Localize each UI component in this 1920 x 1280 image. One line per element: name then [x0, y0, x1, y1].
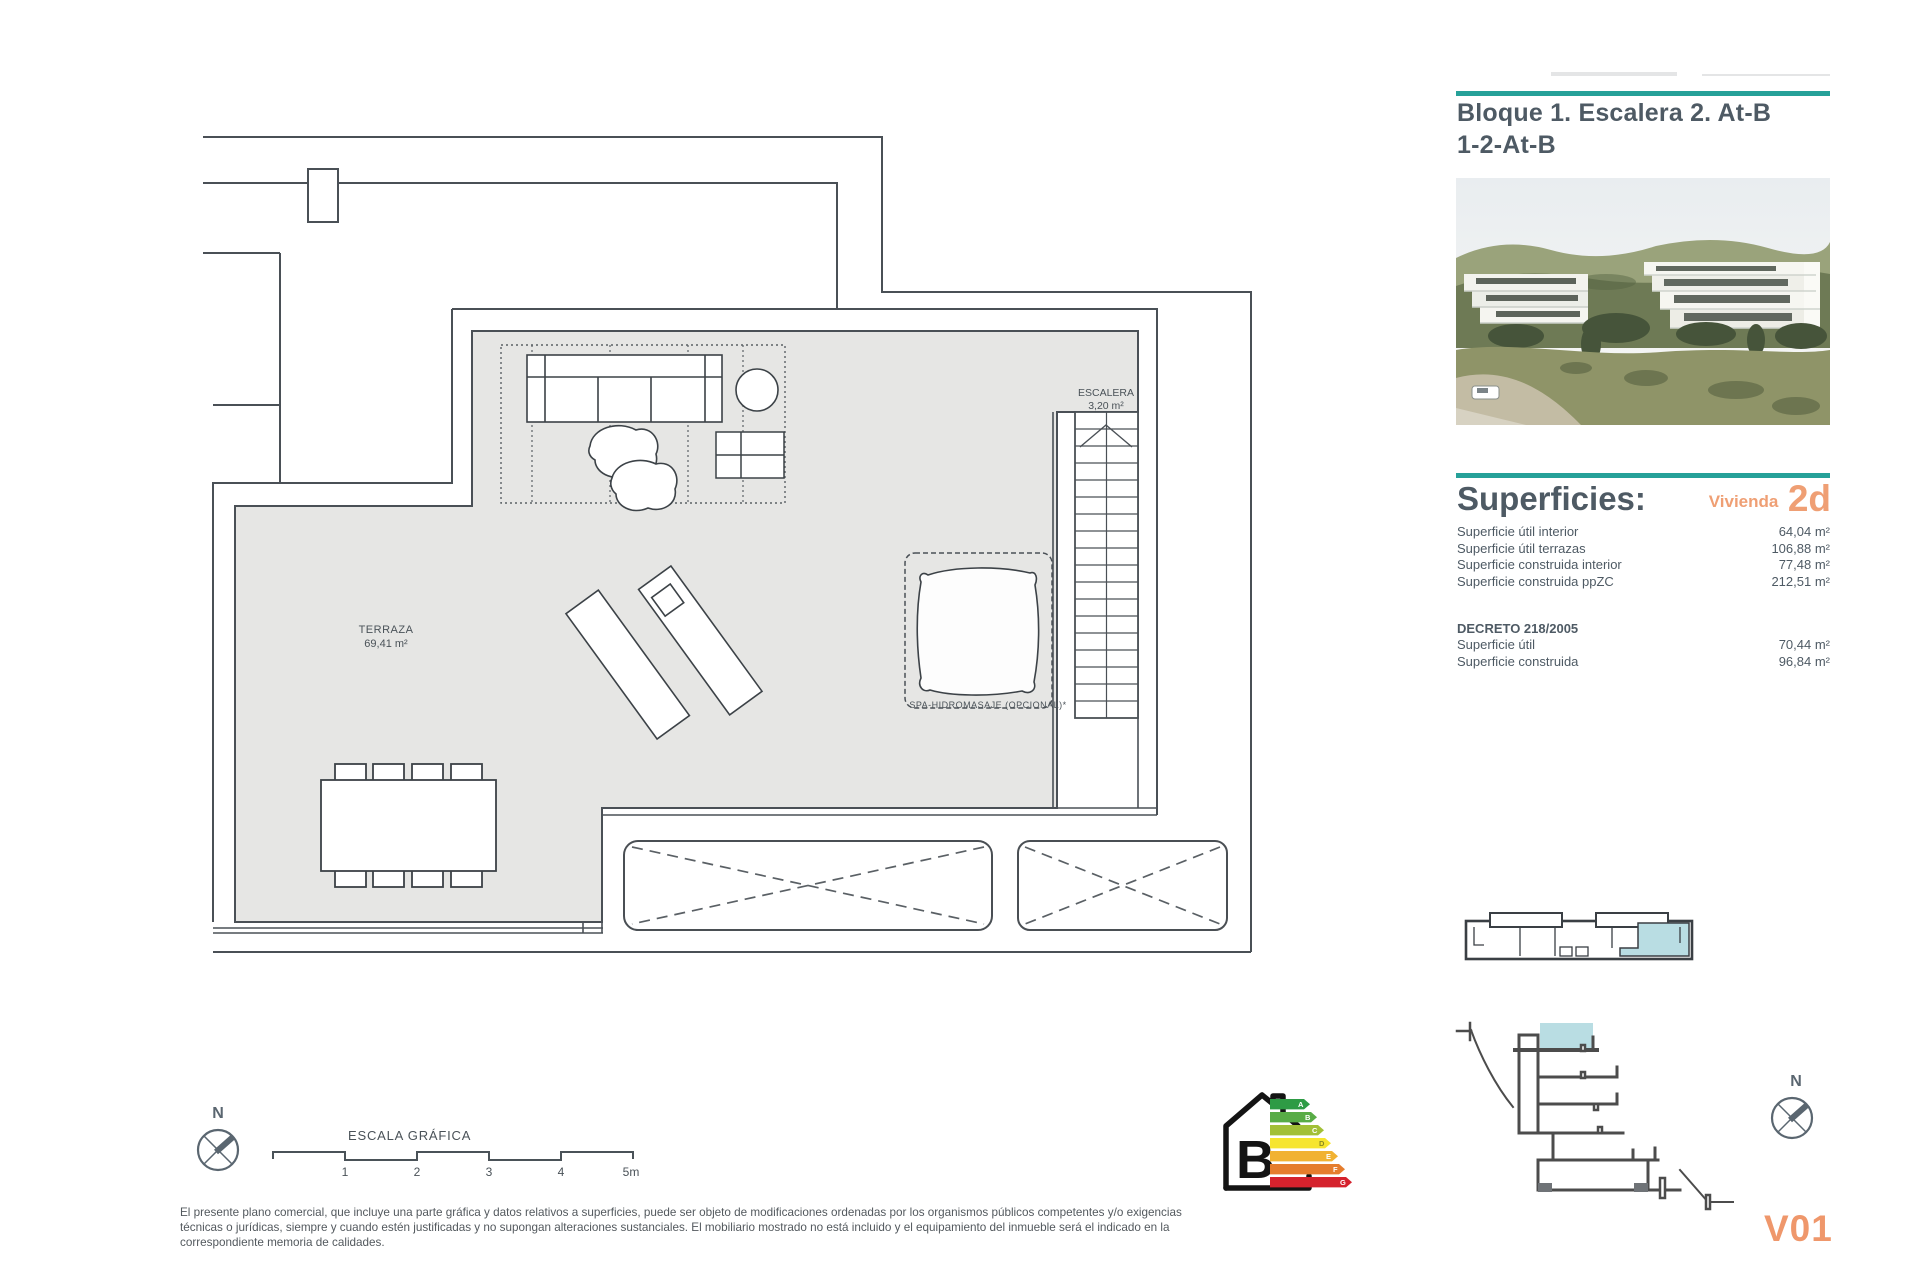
- sofa: [527, 355, 722, 422]
- svg-text:F: F: [1333, 1165, 1338, 1174]
- title-line1: Bloque 1. Escalera 2. At-B: [1457, 97, 1837, 129]
- erased-text-artifact: [1702, 74, 1830, 76]
- spa-label: SPA-HIDROMASAJE (OPCIONAL)*: [909, 700, 1066, 710]
- svg-text:C: C: [1312, 1126, 1318, 1135]
- scale-bar: 1 2 3 4 5m: [265, 1140, 655, 1192]
- car: [1472, 386, 1499, 399]
- north-arrow: N: [186, 1100, 250, 1180]
- table-row: Superficie útil terrazas106,88 m²: [1457, 541, 1830, 558]
- floor-plan: ESCALERA 3,20 m² SPA-HIDROMASAJE (OPCION…: [0, 0, 1340, 1030]
- scale-tick: 5m: [623, 1165, 640, 1179]
- scale-tick: 3: [486, 1165, 493, 1179]
- building-left: [1464, 274, 1588, 323]
- vivienda-code: 2d: [1788, 478, 1831, 519]
- table-row: Superficie útil interior64,04 m²: [1457, 524, 1830, 541]
- side-table: [716, 432, 784, 478]
- header-accent-bar: [1456, 91, 1830, 96]
- compass-needle-icon: [216, 1137, 233, 1152]
- svg-text:B: B: [1305, 1113, 1311, 1122]
- energy-rating-badge: B A B C D E F G: [1212, 1086, 1354, 1206]
- vivienda-label: Vivienda: [1709, 492, 1779, 511]
- skylights: [624, 841, 1227, 930]
- energy-letter: B: [1236, 1130, 1275, 1190]
- table-row: Superficie construida96,84 m²: [1457, 654, 1830, 671]
- svg-text:D: D: [1319, 1139, 1325, 1148]
- north-label: N: [1790, 1073, 1802, 1090]
- skylight-2: [1018, 841, 1227, 930]
- escalera-label: ESCALERA: [1078, 387, 1134, 399]
- decreto-heading: DECRETO 218/2005: [1457, 620, 1830, 637]
- page-title: Bloque 1. Escalera 2. At-B 1-2-At-B: [1457, 97, 1837, 161]
- table-row: Superficie construida ppZC212,51 m²: [1457, 574, 1830, 591]
- disclaimer-text: El presente plano comercial, que incluye…: [180, 1205, 1222, 1250]
- compass-needle-icon: [1790, 1105, 1807, 1120]
- superficies-heading: Superficies:: [1457, 480, 1646, 518]
- scale-tick: 1: [342, 1165, 349, 1179]
- section-diagram: [1455, 1015, 1745, 1215]
- chimney: [308, 169, 338, 222]
- spa: [905, 553, 1052, 708]
- terraza-label: TERRAZA: [359, 624, 414, 636]
- svg-text:G: G: [1340, 1178, 1346, 1187]
- energy-bars: A B C D E F G: [1270, 1099, 1352, 1187]
- svg-text:E: E: [1326, 1152, 1331, 1161]
- plan-version: V01: [1764, 1208, 1833, 1250]
- escalera-area: 3,20 m²: [1088, 400, 1124, 412]
- svg-text:A: A: [1298, 1100, 1304, 1109]
- erased-text-artifact: [1551, 72, 1677, 76]
- dining-table: [321, 764, 496, 887]
- vivienda-badge: Vivienda 2d: [1709, 478, 1831, 520]
- title-line2: 1-2-At-B: [1457, 129, 1837, 161]
- stairs: [1053, 412, 1138, 808]
- table-row: Superficie construida interior77,48 m²: [1457, 557, 1830, 574]
- north-arrow: N: [1760, 1068, 1824, 1148]
- round-table: [736, 369, 778, 411]
- key-plan-diagram: [1460, 905, 1700, 967]
- table-row: Superficie útil70,44 m²: [1457, 637, 1830, 654]
- superficies-table: Superficie útil interior64,04 m² Superfi…: [1457, 524, 1830, 590]
- north-label: N: [212, 1105, 224, 1122]
- building-photo: [1456, 178, 1830, 425]
- decreto-block: DECRETO 218/2005 Superficie útil70,44 m²…: [1457, 620, 1830, 670]
- terraza-area: 69,41 m²: [364, 638, 408, 650]
- scale-tick: 2: [414, 1165, 421, 1179]
- scale-tick: 4: [558, 1165, 565, 1179]
- building-right: [1644, 262, 1820, 328]
